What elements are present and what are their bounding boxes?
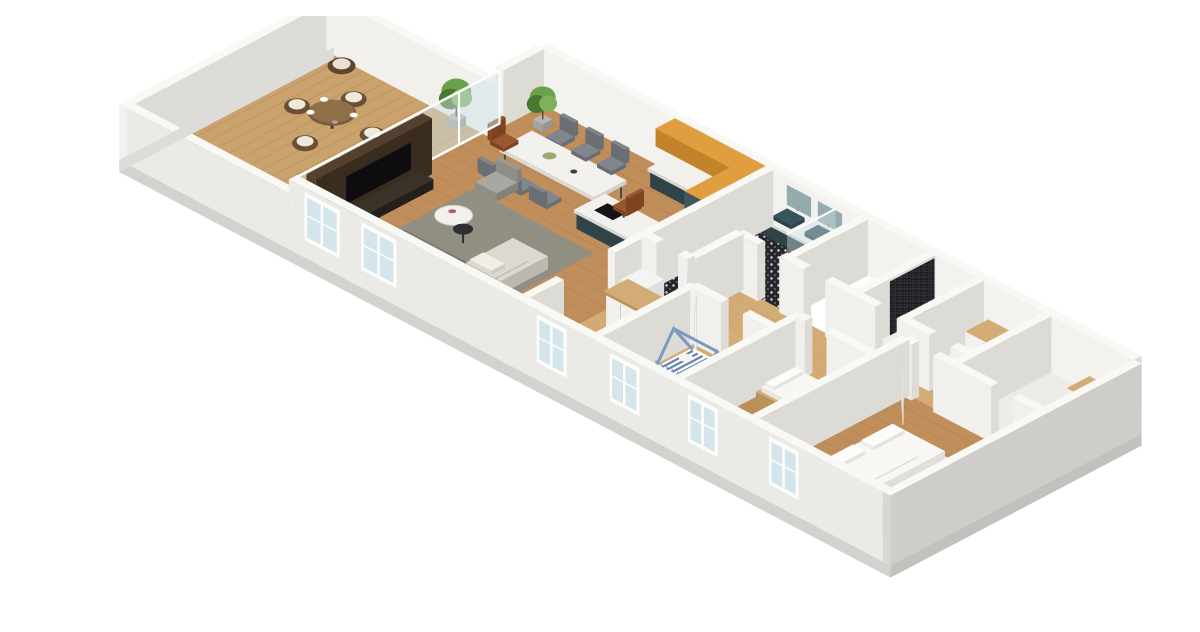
terrace-chair-2	[284, 98, 310, 114]
isometric-floor-plan-render	[40, 16, 1200, 616]
master-door	[902, 354, 903, 425]
floor-plan-canvas	[40, 16, 1200, 616]
terrace-chair-4	[292, 135, 318, 151]
coffee-table	[435, 205, 473, 225]
